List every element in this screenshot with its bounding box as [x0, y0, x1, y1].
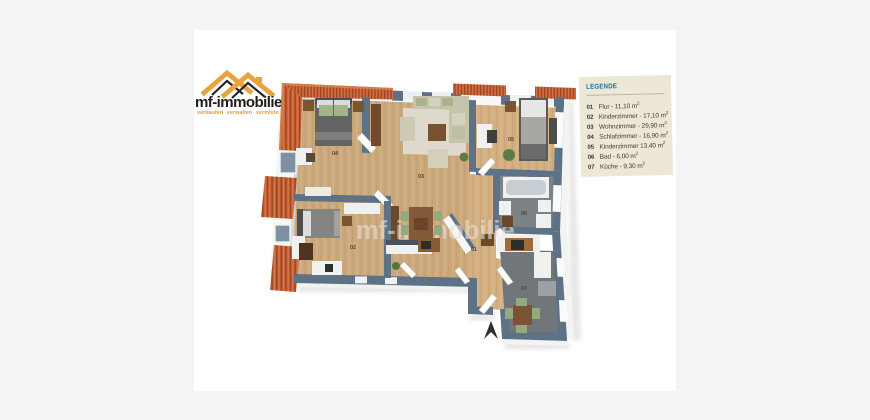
svg-text:02: 02	[350, 245, 356, 251]
svg-text:03: 03	[418, 174, 424, 180]
svg-text:06: 06	[521, 211, 527, 217]
svg-text:01: 01	[471, 247, 477, 253]
svg-text:05: 05	[508, 137, 514, 143]
svg-text:07: 07	[521, 286, 527, 292]
svg-text:04: 04	[332, 151, 339, 157]
